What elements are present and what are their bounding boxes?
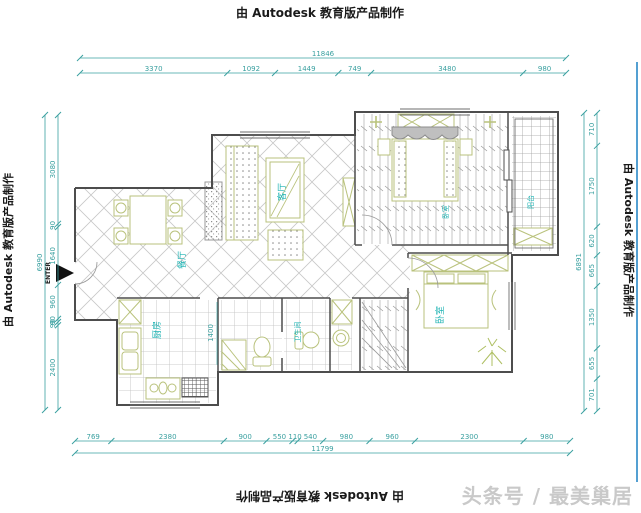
shower-area (222, 340, 246, 370)
dim-label: 2300 (460, 433, 478, 441)
dim-label: 1092 (242, 65, 260, 73)
dim-label: 3370 (145, 65, 163, 73)
dim-label: 6891 (575, 253, 583, 271)
dim-label: 90 (49, 319, 57, 328)
dim-label: 540 (304, 433, 317, 441)
dim-label: 550 (273, 433, 286, 441)
master-bedroom-label: 卧室 (441, 205, 450, 219)
living-label: 客厅 (276, 183, 288, 201)
wash-basin (333, 330, 349, 346)
dim-label: 960 (49, 295, 57, 308)
dim-label: 3080 (49, 160, 57, 178)
balcony-label: 阳台 (526, 195, 535, 209)
washer-box (332, 300, 352, 324)
hall-width-dim: 1400 (207, 324, 215, 342)
dim-label: 980 (540, 433, 553, 441)
bedroom-label: 卧室 (434, 306, 446, 324)
cad-floorplan-screenshot: 由 Autodesk 教育版产品制作 由 Autodesk 教育版产品制作 由 … (0, 0, 641, 513)
dim-label: 900 (238, 433, 251, 441)
dim-label: 701 (588, 388, 596, 401)
dim-label: 2400 (49, 359, 57, 377)
dim-label: 6990 (36, 254, 44, 272)
stove-grill (182, 378, 208, 397)
bedroom-bed (416, 272, 496, 328)
fridge-cabinet (119, 300, 141, 324)
dim-label: 3480 (438, 65, 456, 73)
dim-label: 710 (588, 123, 596, 136)
dim-label: 769 (86, 433, 99, 441)
balcony-cabinet (514, 228, 552, 245)
dim-label: 1640 (49, 247, 57, 265)
ottoman (268, 230, 303, 260)
dim-label: 1449 (298, 65, 316, 73)
dining-label: 餐厅 (176, 251, 188, 269)
dim-label: 110 (288, 433, 301, 441)
hall-cabinet (343, 178, 355, 226)
dim-label: 980 (340, 433, 353, 441)
dim-label: 960 (386, 433, 399, 441)
sofa (226, 146, 258, 240)
kitchen-sink (119, 328, 141, 374)
tv-feature-wall (205, 182, 222, 240)
floor-plan-svg: ENTER 餐厅 客厅 厨房 卫生间 卧室 卧室 阳台 1400 1184633… (0, 0, 641, 513)
plant-icon (478, 338, 506, 366)
cooktop (146, 378, 180, 399)
toilet-1 (253, 337, 271, 366)
dim-label: 1750 (588, 177, 596, 195)
dim-label: 655 (588, 357, 596, 370)
dim-label: 749 (348, 65, 361, 73)
dim-label: 90 (49, 221, 57, 230)
dim-label: 1350 (588, 308, 596, 326)
dim-label: 980 (538, 65, 551, 73)
walkin-floor (362, 300, 408, 370)
kitchen-label: 厨房 (151, 321, 163, 339)
dim-label: 665 (588, 264, 596, 277)
dim-label: 11846 (312, 50, 335, 58)
bedroom-wardrobe (412, 255, 508, 271)
bathroom-label: 卫生间 (293, 322, 302, 343)
dim-label: 620 (588, 234, 596, 247)
enter-arrow-icon (56, 264, 74, 282)
dim-label: 2380 (159, 433, 177, 441)
dim-label: 11799 (311, 445, 333, 453)
